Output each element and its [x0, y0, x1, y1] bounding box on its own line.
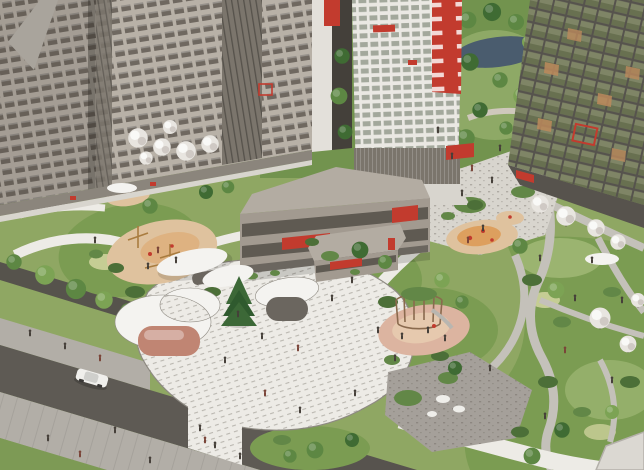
- person: [461, 190, 464, 197]
- person: [574, 295, 577, 302]
- pavilion-glazing: [144, 330, 184, 340]
- play-equipment-dot: [148, 252, 152, 256]
- tree: [334, 48, 349, 63]
- balcony-stack: [96, 0, 112, 190]
- bush: [511, 427, 529, 438]
- person: [427, 327, 430, 334]
- tree: [524, 448, 541, 465]
- white-boulder: [453, 406, 465, 413]
- aerial-render: [0, 0, 644, 470]
- tree: [378, 255, 392, 269]
- person: [99, 355, 102, 362]
- tower-red-stripe: [432, 0, 462, 94]
- bush: [384, 355, 400, 365]
- tree: [461, 53, 479, 71]
- person: [451, 153, 454, 160]
- bush: [378, 296, 398, 308]
- dome-green-roof: [401, 287, 437, 301]
- white-boulder: [427, 411, 437, 417]
- red-crown: [324, 0, 340, 26]
- bush: [603, 287, 621, 297]
- person: [149, 457, 152, 464]
- bush: [441, 212, 455, 220]
- person: [114, 427, 117, 434]
- bush: [89, 250, 103, 259]
- person: [591, 257, 594, 264]
- person: [544, 413, 547, 420]
- person: [204, 437, 207, 444]
- play-equipment-dot: [508, 215, 512, 219]
- podium-annex-red-fin: [388, 238, 395, 250]
- person: [239, 453, 242, 460]
- tree: [352, 242, 369, 259]
- person: [175, 257, 178, 264]
- bush: [273, 435, 291, 445]
- person: [467, 237, 470, 244]
- person: [539, 255, 542, 262]
- person: [64, 343, 67, 350]
- play-equipment-dot: [170, 244, 174, 248]
- podium-red-box: [392, 205, 418, 223]
- tree: [455, 295, 468, 308]
- person: [377, 327, 380, 334]
- bush: [270, 270, 280, 276]
- render-viewport: [0, 0, 644, 470]
- tree: [434, 272, 449, 287]
- tower-red-lintel: [408, 60, 417, 65]
- person: [264, 390, 267, 397]
- elevator-core: [222, 0, 262, 165]
- person: [444, 335, 447, 342]
- person: [157, 247, 160, 254]
- tree: [142, 198, 157, 213]
- tree: [331, 88, 348, 105]
- tree: [6, 254, 21, 269]
- white-canopy: [585, 253, 619, 265]
- person: [564, 347, 567, 354]
- person: [214, 442, 217, 449]
- entrance-accent: [150, 182, 156, 186]
- white-canopy: [107, 183, 137, 193]
- tree: [548, 282, 565, 299]
- person: [79, 451, 82, 458]
- plaza-planter: [394, 390, 422, 406]
- person: [499, 145, 502, 152]
- entrance-accent: [70, 196, 76, 200]
- person: [354, 390, 357, 397]
- person: [299, 407, 302, 414]
- person: [611, 377, 614, 384]
- entrance-awning: [446, 143, 474, 160]
- person: [489, 365, 492, 372]
- person: [471, 165, 474, 172]
- person: [47, 435, 50, 442]
- bush: [538, 376, 558, 388]
- play-equipment-dot: [490, 238, 494, 242]
- tree: [95, 291, 113, 309]
- tree: [222, 181, 235, 194]
- tree: [283, 449, 296, 462]
- bush: [573, 407, 591, 417]
- tree: [605, 405, 619, 419]
- tree: [199, 185, 213, 199]
- tree: [307, 442, 324, 459]
- bush: [620, 376, 640, 388]
- tree: [472, 102, 487, 117]
- left-wing-shadow: [0, 0, 95, 205]
- bush: [108, 263, 124, 273]
- building-corner-edge: [88, 0, 96, 192]
- person: [199, 425, 202, 432]
- person: [351, 277, 354, 284]
- bush: [305, 238, 319, 246]
- play-equipment-dot: [432, 324, 436, 328]
- person: [29, 330, 32, 337]
- bush: [467, 200, 483, 210]
- person: [297, 345, 300, 352]
- white-boulder: [436, 395, 450, 403]
- person: [94, 237, 97, 244]
- tree: [338, 125, 353, 140]
- tree: [499, 121, 512, 134]
- tree: [66, 279, 86, 299]
- dark-pavilion: [266, 297, 308, 321]
- bush: [125, 286, 145, 298]
- person: [437, 127, 440, 134]
- tree: [345, 433, 359, 447]
- tree: [448, 361, 462, 375]
- tree: [512, 238, 527, 253]
- tree: [554, 422, 569, 437]
- tree: [483, 3, 501, 21]
- tree: [492, 72, 507, 87]
- tree: [35, 265, 55, 285]
- bush: [321, 251, 339, 261]
- bush: [350, 269, 360, 275]
- person: [394, 355, 397, 362]
- person: [401, 333, 404, 340]
- bush: [522, 274, 542, 286]
- person: [621, 297, 624, 304]
- person: [237, 311, 240, 318]
- tower-red-lintel: [373, 25, 395, 33]
- person: [491, 177, 494, 184]
- tree: [460, 12, 477, 29]
- person: [331, 295, 334, 302]
- person: [261, 333, 264, 340]
- bush: [553, 317, 571, 328]
- person: [224, 357, 227, 364]
- person: [147, 263, 150, 270]
- tree: [508, 14, 524, 30]
- person: [482, 225, 485, 232]
